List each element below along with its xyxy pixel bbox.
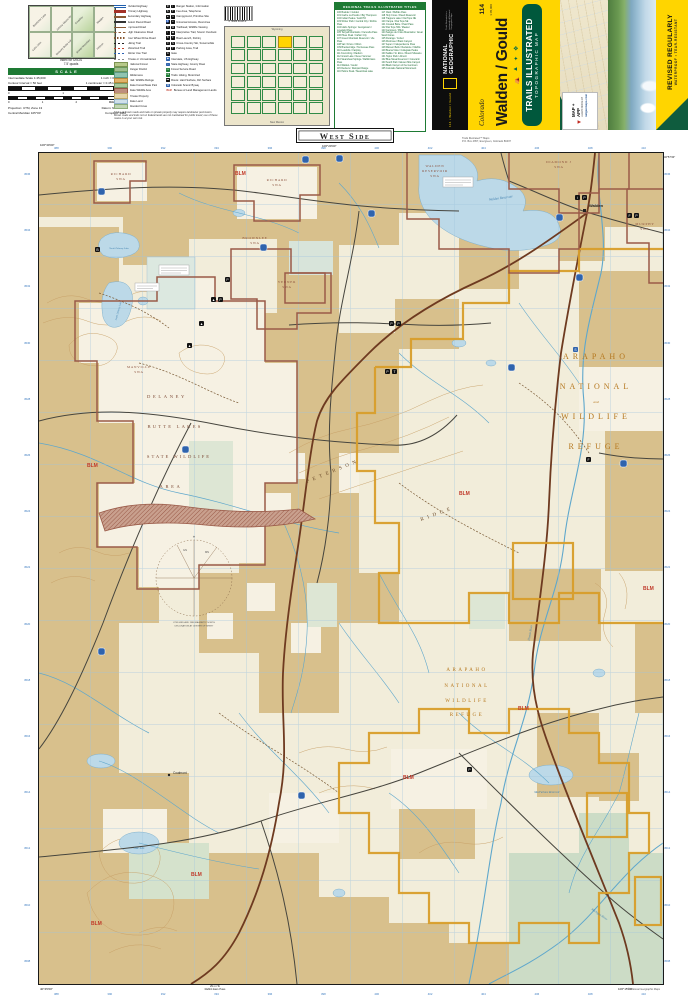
refuge-label: NATIONAL (560, 382, 632, 391)
legend-icon: H (166, 26, 170, 30)
town-label: Walden (589, 203, 604, 208)
natgeo-logo-icon (443, 78, 457, 89)
quad-cell: Sheep Mountain (72, 32, 94, 58)
regional-titles-box: REGIONAL TRAILS ILLUSTRATED TITLES 100 B… (334, 2, 426, 132)
quad-cell: Lake John (29, 32, 51, 58)
parking-icon: P (396, 321, 401, 326)
legend-icon: BLM (166, 89, 172, 93)
utm-number: 4524 (24, 509, 30, 513)
utm-number: 4514 (664, 790, 670, 794)
legend-icon: T (171, 47, 175, 51)
utm-number: 388 (54, 146, 59, 150)
parking-icon: P (634, 213, 639, 218)
parking-icon: P (582, 195, 587, 200)
fishing-icon: F (586, 457, 591, 462)
parking-icon: P (218, 297, 223, 302)
quad-name: Boettcher Lake (32, 13, 46, 27)
quad-name: Delaney Butte Lakes (55, 37, 72, 56)
refuge2-label: REFUGE (450, 713, 484, 718)
quad-cell: Walden (94, 6, 116, 32)
utm-number: 4508 (24, 959, 30, 963)
legend-icon: ◉ (171, 31, 175, 35)
quad-name: Cowdrey (74, 16, 83, 25)
legend-row: ◆Interstate, US Highway (166, 57, 222, 62)
utm-number: 4510 (24, 903, 30, 907)
natgeo-wordmark: NATIONAL GEOGRAPHIC (444, 34, 456, 74)
legend-row: Motorized Trail (114, 46, 164, 51)
cover-photo (608, 0, 656, 130)
spine-series-text: 114 • Walden / Gould (448, 93, 452, 127)
svg-text:BLM: BLM (518, 706, 529, 712)
utm-number: 4518 (664, 678, 670, 682)
utm-number: 408 (588, 146, 593, 150)
legend-row: Winter Use Trail (114, 52, 164, 57)
utm-number: 4520 (664, 622, 670, 626)
utm-number: 390 (107, 146, 112, 150)
svg-text:MN: MN (205, 550, 209, 554)
utm-number: 390 (107, 992, 112, 996)
legend-row: Divided Highway (114, 4, 164, 9)
town-label: Coalmont (173, 771, 187, 775)
legend-icon: ≡ (171, 20, 175, 24)
utm-number: 400 (374, 992, 379, 996)
svg-text:BLM: BLM (459, 491, 470, 497)
svg-text:BLM: BLM (191, 872, 202, 878)
legend-row: XSCross-Country Ski, Snowmobile (166, 41, 222, 46)
publisher-note: Trails Illustrated™ Maps P.O. Box 4357, … (462, 137, 622, 143)
legend-row: Primary Highway (114, 9, 164, 14)
utm-number: 404 (481, 992, 486, 996)
svg-text:DECLINATION AT CENTER OF SHEET: DECLINATION AT CENTER OF SHEET (175, 625, 214, 628)
legend-icon: B (166, 36, 170, 40)
colorado-index-map: Wyoming New Mexico (224, 26, 330, 126)
quad-cell: Cowdrey (72, 6, 94, 32)
line-symbol-swatch (114, 10, 126, 12)
delaney-label: AREA (160, 484, 183, 489)
legend-icon: ▭ (166, 68, 170, 72)
utm-number: 4530 (24, 341, 30, 345)
legend-row: ⌘Colorado Scenic Byway (166, 83, 222, 88)
utm-number: 4532 (24, 284, 30, 288)
svg-text:BLM: BLM (91, 921, 102, 927)
information-icon: i (575, 195, 580, 200)
legend-point-symbols: RiRanger Station, Information$TFee Area,… (166, 4, 222, 109)
utm-northings-left: 4536453445324530452845264524452245204518… (24, 152, 30, 983)
refuge-label: WILDLIFE (561, 412, 631, 421)
boat-launch-icon: B (95, 247, 100, 252)
legend-row: High Clearance Road (114, 30, 164, 35)
legend-row: Wooded Cover (114, 104, 164, 109)
delaney-label: DELANEY (147, 394, 187, 399)
legend-icon: ∧ (171, 15, 175, 19)
current-map-cell (278, 36, 292, 48)
legend-line-symbols: Divided HighwayPrimary HighwaySecondary … (114, 4, 164, 109)
utm-number: 4514 (24, 790, 30, 794)
utm-number: 406 (535, 992, 540, 996)
utm-number: 4518 (24, 678, 30, 682)
regional-title: 116 Hahns Peak / Steamboat Lake (337, 71, 379, 74)
location-pin-icon: ▼ (577, 119, 583, 125)
utm-number: 4508 (664, 959, 670, 963)
spine-footnote: Trails Illustrated is a trademark of Nat… (446, 3, 454, 30)
activity-icon: ❖ (513, 46, 520, 51)
utm-number: 398 (321, 992, 326, 996)
legend-row: ♿≡Universal Access, Rest Area (166, 20, 222, 25)
quad-name: Walden (96, 16, 104, 24)
svg-text:F: F (587, 458, 589, 462)
line-symbol-swatch (114, 59, 126, 60)
svg-text:SWA: SWA (134, 370, 144, 374)
legend-row: BLMBureau of Land Management Lands (166, 89, 222, 94)
statemap-label-top: Wyoming (225, 28, 329, 31)
legend-row: HWTrailhead, Wildlife Viewing (166, 25, 222, 30)
map-sheet: Boettcher LakeJohnny Moore MountainCowdr… (0, 0, 688, 1000)
utm-number: 4516 (664, 734, 670, 738)
utm-number: 4522 (664, 565, 670, 569)
svg-text:BLM: BLM (403, 775, 414, 781)
legend-icon: ○ (166, 63, 170, 67)
campground-icon: ▲ (199, 321, 204, 326)
legend-footnote: Status of brown roads and trails on priv… (114, 111, 220, 120)
svg-text:UTM GRID AND 1986 MAGNETIC NOR: UTM GRID AND 1986 MAGNETIC NORTH (173, 621, 215, 624)
line-symbol-swatch (114, 48, 126, 49)
west-side-label: West Side (296, 128, 394, 143)
svg-text:RESERVOIR: RESERVOIR (422, 169, 448, 173)
refuge-label: and (593, 400, 599, 404)
legend-icon: ▬ (166, 78, 170, 82)
svg-text:SWA: SWA (250, 241, 260, 245)
line-symbol-swatch (114, 27, 126, 28)
svg-text:SWA: SWA (272, 183, 282, 187)
legend-icon: mi (166, 73, 170, 77)
utm-number: 388 (54, 992, 59, 996)
svg-text:✶: ✶ (193, 535, 196, 539)
utm-number: 396 (268, 992, 273, 996)
legend-icon: ◆ (166, 57, 170, 61)
svg-text:MANVILLE: MANVILLE (127, 365, 151, 369)
legend-row: BFBoat Launch, Fishing (166, 36, 222, 41)
line-symbol-swatch (114, 32, 126, 33)
legend-icon: G (166, 52, 170, 56)
svg-text:MURPHY: MURPHY (635, 222, 654, 226)
utm-number: 4534 (24, 228, 30, 232)
utm-number: 4534 (664, 228, 670, 232)
quad-cell: Boettcher Lake (29, 6, 51, 32)
quad-name: Lake John (32, 41, 43, 52)
utm-number: 410 (641, 992, 646, 996)
map-app-content: ▼ MAP + APP LEARN MORE AT natgeomaps.com (563, 94, 596, 127)
legend-row: ○State Highway, County Road (166, 62, 222, 67)
svg-text:Lake John: Lake John (133, 847, 145, 850)
utm-number: 392 (161, 992, 166, 996)
utm-number: 392 (161, 146, 166, 150)
ribbon-content: REVISED REGULARLY WATERPROOF • TEAR-RESI… (656, 0, 688, 130)
map-canvas: ✶ GN MN UTM GRID AND 1986 MAGNETIC NORTH… (39, 153, 663, 984)
svg-text:RICHARD: RICHARD (111, 172, 132, 176)
utm-northings-right: 4536453445324530452845264524452245204518… (664, 152, 670, 983)
svg-text:▲: ▲ (200, 322, 203, 326)
utm-number: 400 (374, 146, 379, 150)
legend-icon: F (171, 36, 175, 40)
barcode (224, 6, 253, 21)
activity-icon: ▲ (513, 66, 520, 72)
line-symbol-swatch (114, 104, 128, 109)
cover-scale: 1:45,000 (489, 4, 493, 16)
utm-eastings-top: 388390392394396398400402404406408410 (38, 146, 662, 150)
utm-number: 394 (214, 992, 219, 996)
activity-icon: ⛺ (513, 77, 520, 84)
refuge-label: REFUGE (568, 442, 623, 451)
svg-text:SWA: SWA (282, 285, 292, 289)
legend-icon: ♿ (166, 20, 170, 24)
barcode-number: 0 78989 61145 2 (224, 20, 251, 23)
map-legend: Divided HighwayPrimary HighwaySecondary … (114, 4, 222, 120)
line-symbol-swatch (114, 43, 126, 44)
fishing-icon: F (627, 213, 632, 218)
legend-icon: T (171, 10, 175, 14)
utm-number: 4526 (24, 453, 30, 457)
svg-text:SWA: SWA (640, 227, 650, 231)
legend-row: miTrails: Hiking, Motorized (166, 73, 222, 78)
legend-icon: R (166, 5, 170, 9)
legend-icon: P (166, 47, 170, 51)
svg-text:▲: ▲ (212, 298, 215, 302)
legend-row: i◉Interpretive Trail, Scenic Overlook (166, 30, 222, 35)
legend-icon: $ (166, 10, 170, 14)
trails-illustrated-badge: TRAILS ILLUSTRATED TOPOGRAPHIC MAP (522, 4, 542, 126)
line-symbol-swatch (114, 53, 126, 54)
svg-text:SWA: SWA (116, 177, 126, 181)
svg-text:DIAMOND J: DIAMOND J (546, 160, 572, 164)
utm-number: 410 (641, 146, 646, 150)
activity-icons: ⛺▲✦❖ (513, 4, 520, 126)
svg-text:BROWNLEE: BROWNLEE (242, 236, 267, 240)
svg-text:RICHARD: RICHARD (267, 178, 288, 182)
campground-icon: ▲ (211, 297, 216, 302)
utm-number: 4528 (24, 397, 30, 401)
delaney-label: STATE WILDLIFE (147, 454, 211, 459)
cover-number: 114 (479, 4, 486, 15)
cover-title: Walden / Gould (494, 4, 512, 126)
line-symbol-swatch (114, 16, 126, 18)
map-canvas-frame: ✶ GN MN UTM GRID AND 1986 MAGNETIC NORTH… (38, 152, 664, 985)
utm-number: 402 (428, 992, 433, 996)
line-symbol-swatch (114, 37, 126, 38)
svg-text:GN: GN (183, 548, 187, 552)
utm-number: 4536 (24, 172, 30, 176)
legend-icon: i (166, 31, 170, 35)
svg-text:MacFarlane Reservoir: MacFarlane Reservoir (533, 791, 560, 794)
legend-row: Secondary Highway (114, 15, 164, 20)
campground-icon: ▲ (187, 343, 192, 348)
cover-content: Colorado 114 1:45,000 Walden / Gould ⛺▲✦… (468, 0, 560, 130)
refuge2-label: WILDLIFE (445, 699, 489, 704)
svg-text:BLM: BLM (87, 463, 98, 469)
refuge-label: ARAPAHO (563, 352, 629, 361)
utm-number: 4536 (664, 172, 670, 176)
utm-number: 408 (588, 992, 593, 996)
usgs-quad-index: Boettcher LakeJohnny Moore MountainCowdr… (28, 5, 116, 59)
activity-icon: ✦ (513, 56, 520, 61)
legend-row: ▭Forest Service Road (166, 67, 222, 72)
statemap-quad-grid (231, 36, 323, 114)
utm-number: 394 (214, 146, 219, 150)
parking-icon: P (467, 767, 472, 772)
utm-number: 404 (481, 146, 486, 150)
refuge2-label: ARAPAHO (446, 668, 487, 673)
scale-title: SCALE (8, 68, 126, 75)
parking-icon: P (225, 277, 230, 282)
legend-row: Hiking Trail (114, 41, 164, 46)
legend-icon: ▲ (166, 15, 170, 19)
utm-number: 4526 (664, 453, 670, 457)
utm-grid (39, 153, 663, 984)
utm-number: 4522 (24, 565, 30, 569)
line-symbol-swatch (114, 21, 126, 22)
utm-number: 4510 (664, 903, 670, 907)
legend-row: $TFee Area, Telephone (166, 9, 222, 14)
utm-number: 4528 (664, 397, 670, 401)
cover-state: Colorado (478, 99, 486, 126)
utm-number: 4516 (24, 734, 30, 738)
regional-titles-list: 100 Boulder / Golden101 Cache La Poudre … (335, 10, 425, 75)
quad-name: Sheep Mountain (76, 39, 91, 54)
legend-icon: ⌘ (166, 84, 170, 88)
utm-number: 4512 (664, 846, 670, 850)
legend-icon: X (166, 42, 170, 46)
legend-icon: S (171, 42, 175, 46)
regional-titles-header: REGIONAL TRAILS ILLUSTRATED TITLES (335, 3, 425, 10)
scale-block: SCALE Intermediate Scale 1:45,0001 inch … (8, 68, 126, 115)
svg-text:▲: ▲ (188, 344, 191, 348)
svg-text:SWA: SWA (430, 174, 440, 178)
parking-icon: P (389, 321, 394, 326)
legend-row: GGate (166, 52, 222, 57)
line-symbol-swatch (114, 5, 126, 8)
quad-name: Johnny Moore Mountain (56, 10, 72, 32)
svg-text:BLM: BLM (235, 171, 246, 177)
legend-row: Improved Road (114, 25, 164, 30)
legend-row: Select Paved Road (114, 20, 164, 25)
utm-number: 4512 (24, 846, 30, 850)
svg-text:BLM: BLM (643, 586, 654, 592)
legend-row: ▬Route: Hard Surface, Dirt Surface (166, 78, 222, 83)
delaney-label: BUTTE LAKES (148, 424, 203, 429)
svg-text:North Delaney Lake: North Delaney Lake (108, 247, 128, 250)
utm-number: 398 (321, 146, 326, 150)
trailhead-icon: T (392, 369, 397, 374)
quad-cell: Johnny Moore Mountain (51, 6, 73, 32)
utm-number: 4520 (24, 622, 30, 626)
quad-index-caption: Index for USGS 7.5' quads (28, 58, 114, 66)
regional-title: 135 Colorado National Monument (382, 68, 424, 71)
utm-number: 4532 (664, 284, 670, 288)
svg-text:T: T (393, 370, 395, 374)
copyright-note: © National Geographic Maps (430, 988, 660, 991)
legend-icon: i (171, 5, 175, 9)
statemap-label-bottom: New Mexico (225, 121, 329, 124)
corner-coordinate-sw: 40°45'00" (40, 987, 53, 991)
svg-text:WALDEN: WALDEN (425, 164, 444, 168)
svg-text:SWA: SWA (554, 165, 564, 169)
utm-eastings-bottom: 388390392394396398400402404406408410 (38, 992, 662, 996)
legend-row: Four Wheel Drive Road (114, 36, 164, 41)
legend-row: ▲∧Campground, Primitive Site (166, 15, 222, 20)
utm-number: 4530 (664, 341, 670, 345)
utm-number: 402 (428, 146, 433, 150)
utm-number: 406 (535, 146, 540, 150)
legend-row: PTParking Area, Trail (166, 46, 222, 51)
quad-name: Hebron (96, 42, 104, 50)
legend-icon: W (171, 26, 175, 30)
svg-text:VERNER: VERNER (278, 280, 296, 284)
utm-number: 396 (268, 146, 273, 150)
parking-icon: P (385, 369, 390, 374)
utm-number: 4524 (664, 509, 670, 513)
svg-text:F: F (628, 214, 630, 218)
refuge2-label: NATIONAL (444, 684, 489, 689)
legend-row: RiRanger Station, Information (166, 4, 222, 9)
quad-cell: Hebron (94, 32, 116, 58)
quad-cell: Delaney Butte Lakes (51, 32, 73, 58)
cover-spine-content: 114 • Walden / Gould NATIONAL GEOGRAPHIC… (432, 0, 468, 130)
